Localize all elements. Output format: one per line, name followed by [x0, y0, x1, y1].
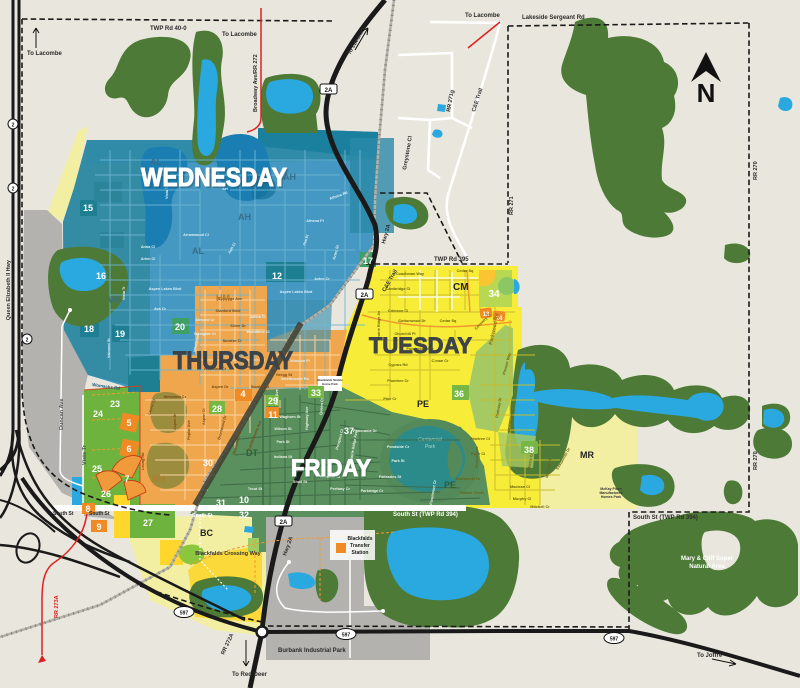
svg-text:Maclean Cl: Maclean Cl — [510, 485, 530, 489]
svg-text:Broadway Ave/RR 272: Broadway Ave/RR 272 — [253, 54, 259, 112]
svg-text:Valmont St: Valmont St — [107, 338, 111, 358]
svg-text:Waghorn St: Waghorn St — [279, 415, 301, 419]
svg-text:17: 17 — [363, 256, 373, 266]
svg-text:597: 597 — [610, 637, 619, 643]
svg-text:Park: Park — [425, 444, 436, 450]
svg-text:AH: AH — [283, 172, 296, 182]
svg-text:23: 23 — [110, 399, 120, 409]
svg-text:Cedar Sq: Cedar Sq — [457, 269, 474, 273]
svg-text:MR: MR — [580, 450, 594, 460]
svg-text:28: 28 — [212, 404, 222, 414]
svg-text:WEDNESDAY: WEDNESDAY — [141, 162, 287, 192]
svg-text:10: 10 — [239, 495, 249, 505]
svg-text:Plumtree Cr: Plumtree Cr — [387, 379, 409, 383]
svg-text:Cottonwood Dr: Cottonwood Dr — [398, 319, 426, 323]
svg-text:Park St: Park St — [391, 459, 405, 463]
svg-text:TUESDAY: TUESDAY — [369, 333, 472, 358]
svg-text:2A: 2A — [325, 88, 333, 94]
svg-text:Trout St: Trout St — [248, 487, 263, 491]
svg-text:Lakeside Sergeant Rd: Lakeside Sergeant Rd — [522, 15, 585, 21]
svg-text:Almond Cr: Almond Cr — [195, 318, 215, 322]
svg-text:19: 19 — [115, 329, 125, 339]
svg-text:36: 36 — [454, 389, 464, 399]
svg-text:Ava Cr: Ava Cr — [154, 307, 167, 311]
svg-text:TWP Rd 395: TWP Rd 395 — [434, 257, 469, 263]
svg-text:Arrowwood Cl: Arrowwood Cl — [183, 233, 209, 237]
svg-text:DT: DT — [246, 448, 258, 458]
svg-text:Aspen Lakes Blvd: Aspen Lakes Blvd — [149, 287, 182, 291]
svg-text:Silver Dr: Silver Dr — [230, 324, 246, 328]
svg-text:18: 18 — [84, 324, 94, 334]
svg-text:Home Park: Home Park — [322, 382, 338, 386]
svg-text:Transfer: Transfer — [350, 543, 370, 549]
svg-text:5: 5 — [126, 418, 131, 428]
svg-text:BC: BC — [200, 528, 213, 538]
svg-text:Aztec Cr: Aztec Cr — [314, 277, 330, 281]
svg-text:12: 12 — [272, 271, 282, 281]
svg-text:Anna Cl: Anna Cl — [141, 245, 155, 249]
svg-text:To Lacombe: To Lacombe — [27, 51, 63, 57]
svg-text:To Lacombe: To Lacombe — [222, 32, 258, 38]
svg-text:9: 9 — [96, 522, 101, 532]
svg-text:Pine Cr: Pine Cr — [383, 397, 397, 401]
svg-text:Vista Tr: Vista Tr — [82, 444, 88, 465]
svg-text:4: 4 — [240, 389, 245, 399]
svg-text:PE: PE — [417, 399, 429, 409]
svg-text:597: 597 — [342, 633, 351, 639]
svg-text:Pinetree Cl: Pinetree Cl — [470, 437, 490, 441]
svg-text:Wilson St: Wilson St — [274, 427, 292, 431]
svg-text:2A: 2A — [280, 520, 288, 526]
svg-text:30: 30 — [203, 458, 213, 468]
svg-text:Palisades St: Palisades St — [379, 475, 402, 479]
svg-text:Pondside Cr: Pondside Cr — [387, 445, 410, 449]
svg-text:Adina Cl: Adina Cl — [250, 315, 265, 319]
svg-text:HM: HM — [216, 293, 230, 303]
svg-text:Natural Area: Natural Area — [689, 564, 725, 570]
svg-text:RR 271: RR 271 — [509, 196, 515, 215]
svg-text:27: 27 — [143, 518, 153, 528]
svg-text:15: 15 — [83, 203, 93, 213]
svg-text:Sunrise Cl: Sunrise Cl — [223, 339, 242, 343]
svg-text:25: 25 — [92, 464, 102, 474]
svg-text:Blackfalds: Blackfalds — [347, 536, 372, 542]
svg-text:Cyprus Rd: Cyprus Rd — [388, 363, 408, 367]
svg-text:To Joffre: To Joffre — [697, 653, 723, 659]
svg-text:Queen Elizabeth II Hwy: Queen Elizabeth II Hwy — [6, 259, 12, 320]
svg-text:N: N — [697, 78, 716, 108]
svg-text:24: 24 — [93, 409, 103, 419]
svg-text:Cedar Sq: Cedar Sq — [440, 319, 457, 323]
svg-text:Aspen Lakes Blvd: Aspen Lakes Blvd — [280, 290, 313, 294]
svg-text:Arlen Cl: Arlen Cl — [141, 257, 156, 261]
svg-text:AH: AH — [238, 212, 251, 222]
svg-text:Pioneer Ave: Pioneer Ave — [475, 446, 479, 468]
svg-text:597: 597 — [180, 611, 189, 617]
svg-text:Woodbine Cl: Woodbine Cl — [246, 330, 269, 334]
svg-text:Duncan Ave: Duncan Ave — [59, 399, 65, 430]
svg-text:2: 2 — [12, 123, 15, 129]
svg-text:Stanley St: Stanley St — [251, 385, 270, 389]
svg-text:South St: South St — [192, 513, 213, 519]
svg-text:To Red Deer: To Red Deer — [232, 672, 268, 678]
svg-text:Palmer Circle: Palmer Circle — [460, 491, 484, 495]
svg-text:PE: PE — [444, 480, 456, 490]
svg-text:33: 33 — [311, 388, 321, 398]
svg-text:Station: Station — [352, 550, 369, 556]
svg-text:34: 34 — [488, 289, 500, 300]
svg-text:RR 270: RR 270 — [753, 161, 759, 180]
svg-text:Mitchell Cr: Mitchell Cr — [530, 505, 550, 509]
svg-text:TWP Rd 40-0: TWP Rd 40-0 — [150, 26, 187, 32]
svg-text:Athena Pl: Athena Pl — [306, 219, 324, 223]
svg-text:RR 273A: RR 273A — [54, 595, 60, 618]
svg-text:South St (TWP Rd 394): South St (TWP Rd 394) — [633, 515, 698, 521]
svg-text:South St: South St — [53, 511, 74, 517]
svg-text:20: 20 — [175, 322, 185, 332]
svg-text:Winston Pl: Winston Pl — [290, 359, 310, 363]
svg-text:Coachman Way: Coachman Way — [396, 272, 425, 276]
svg-text:FRIDAY: FRIDAY — [291, 455, 371, 482]
svg-text:2A: 2A — [361, 293, 369, 299]
svg-text:2: 2 — [26, 338, 29, 344]
svg-text:Weelbrooke Rd: Weelbrooke Rd — [281, 377, 309, 381]
svg-text:7: 7 — [124, 474, 129, 484]
svg-text:Mary & Cliff Soper: Mary & Cliff Soper — [681, 556, 734, 562]
svg-text:AL: AL — [150, 157, 162, 167]
svg-text:Aspen Dr: Aspen Dr — [212, 385, 229, 389]
svg-text:Vista Tr: Vista Tr — [122, 286, 126, 300]
svg-text:Blackfalds Crossing Way: Blackfalds Crossing Way — [195, 551, 261, 557]
svg-text:South St (TWP Rd 394): South St (TWP Rd 394) — [393, 512, 458, 518]
svg-text:Burbank Industrial Park: Burbank Industrial Park — [278, 648, 346, 654]
svg-text:Indiana St: Indiana St — [274, 455, 293, 459]
svg-text:East Ave: East Ave — [275, 389, 279, 405]
svg-text:To Lacombe: To Lacombe — [465, 13, 501, 19]
svg-text:32: 32 — [239, 510, 249, 520]
svg-text:VR: VR — [108, 295, 121, 305]
svg-text:16: 16 — [96, 271, 106, 281]
svg-text:31: 31 — [216, 498, 226, 508]
svg-text:11: 11 — [268, 410, 278, 420]
svg-text:Parkridge Cr: Parkridge Cr — [361, 489, 384, 493]
svg-text:RR 270: RR 270 — [753, 451, 759, 470]
svg-text:CM: CM — [453, 282, 469, 293]
svg-text:Crimson Cl: Crimson Cl — [388, 309, 408, 313]
svg-text:THURSDAY: THURSDAY — [173, 347, 293, 375]
svg-text:6: 6 — [126, 444, 131, 454]
svg-text:2: 2 — [12, 187, 15, 193]
svg-text:South St: South St — [89, 511, 110, 517]
svg-text:Murphy Cl: Murphy Cl — [513, 497, 532, 501]
svg-text:26: 26 — [101, 489, 111, 499]
svg-text:Aspen Dr: Aspen Dr — [173, 413, 177, 430]
svg-text:Highway Ave: Highway Ave — [305, 407, 309, 430]
svg-text:Panorama Dr: Panorama Dr — [353, 429, 377, 433]
svg-text:AL: AL — [192, 246, 204, 256]
svg-text:Aspen Cr: Aspen Cr — [202, 408, 206, 425]
svg-text:Leung Rd: Leung Rd — [141, 452, 145, 470]
svg-text:Westview Cr: Westview Cr — [164, 395, 187, 399]
svg-text:Park St: Park St — [276, 440, 290, 444]
svg-text:Stanford Blvd: Stanford Blvd — [216, 309, 242, 313]
svg-text:Poplar Ave: Poplar Ave — [187, 420, 191, 440]
svg-text:RH: RH — [152, 474, 165, 484]
svg-text:C.man Cr: C.man Cr — [432, 359, 449, 363]
svg-text:Eastpointe Dr: Eastpointe Dr — [456, 477, 481, 481]
svg-text:Perfway Cr: Perfway Cr — [330, 487, 350, 491]
